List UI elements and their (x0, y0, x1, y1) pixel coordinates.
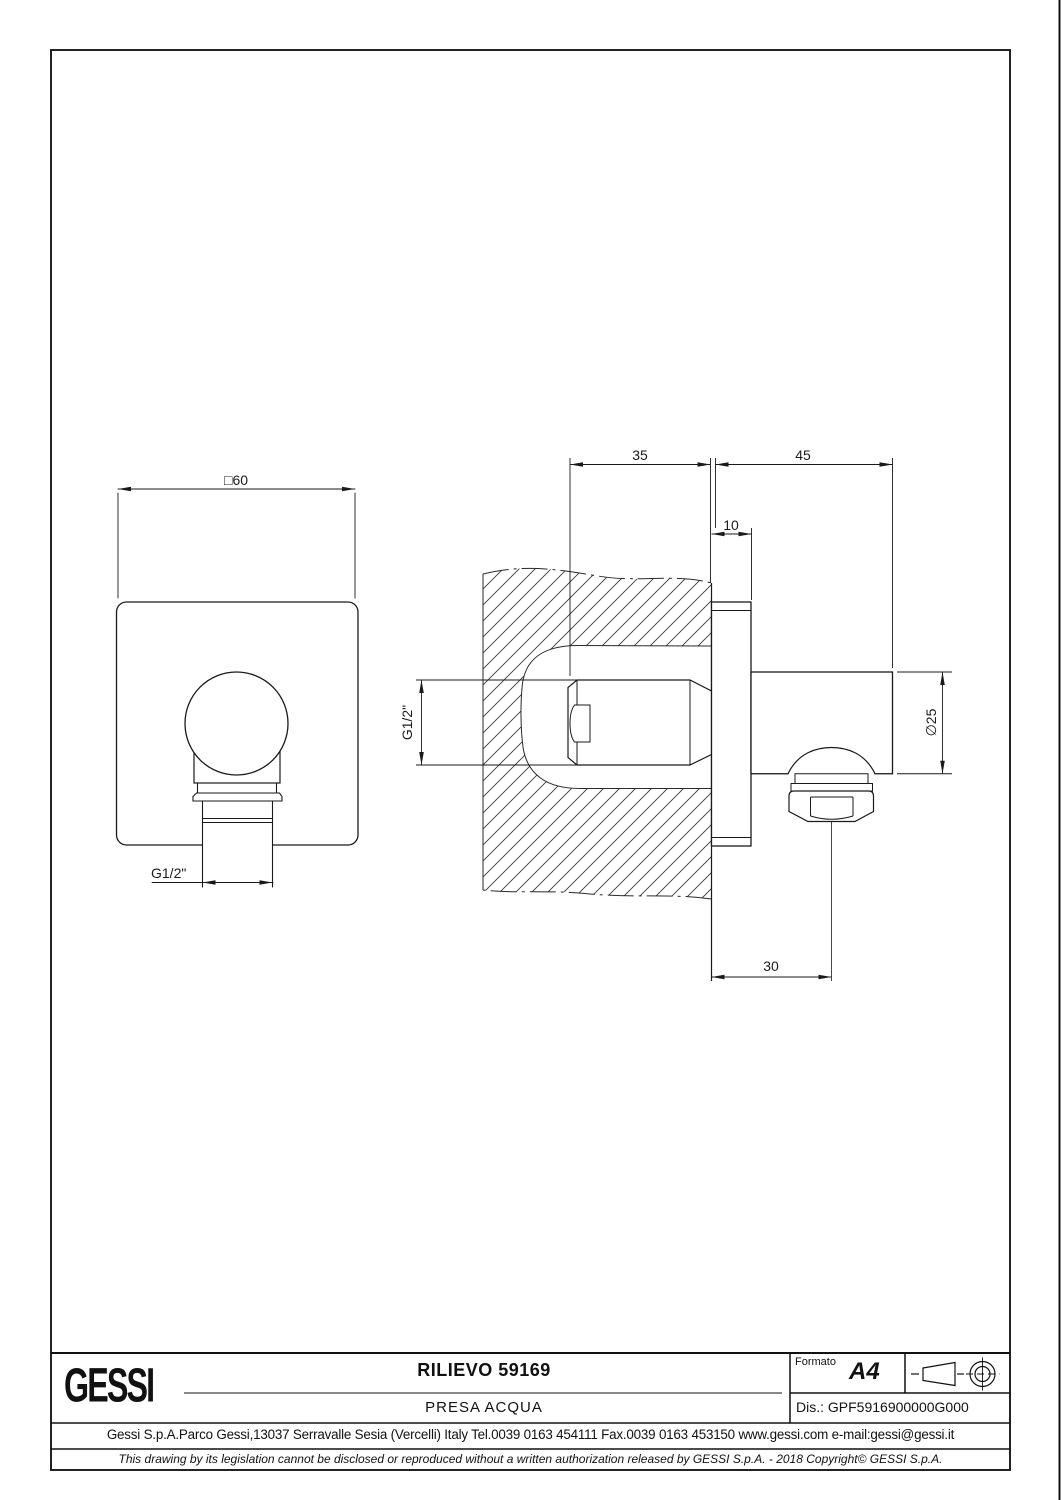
dim-embed-depth: 35 (632, 447, 648, 463)
dim-front-width: □60 (224, 472, 248, 488)
legal-disclaimer: This drawing by its legislation cannot b… (51, 1452, 1010, 1466)
first-angle-projection-icon (911, 1358, 1000, 1391)
dim-section-thread: G1/2" (399, 705, 415, 740)
front-width-dimension (118, 489, 355, 598)
company-address: Gessi S.p.A.Parco Gessi,13037 Serravalle… (51, 1427, 1010, 1442)
section-view: 35 45 10 G1/2" ∅25 (399, 447, 952, 981)
dim-projection: 45 (795, 447, 811, 463)
drawing-sheet: □60 G1/2" (0, 0, 1061, 1500)
format-value: A4 (849, 1358, 880, 1386)
drawing-subtitle: PRESA ACQUA (184, 1399, 784, 1416)
drawing-title: RILIEVO 59169 (184, 1360, 784, 1381)
plate-side (712, 602, 752, 846)
gessi-logo: GESSI (64, 1362, 153, 1410)
front-view: □60 G1/2" (117, 472, 359, 887)
dim-front-thread: G1/2" (151, 865, 186, 881)
outlet-nozzle (788, 748, 875, 982)
dim-diameter: ∅25 (923, 708, 939, 736)
front-ball (185, 672, 288, 775)
plate-thickness-dimension (712, 528, 752, 600)
embedded-body (568, 680, 712, 765)
drawing-number: Dis.: GPF5916900000G000 (796, 1399, 969, 1415)
dim-outlet-offset: 30 (763, 958, 779, 974)
dim-plate-thickness: 10 (723, 517, 739, 533)
technical-drawing-canvas: □60 G1/2" (0, 0, 1061, 1500)
format-label: Formato (795, 1356, 836, 1368)
